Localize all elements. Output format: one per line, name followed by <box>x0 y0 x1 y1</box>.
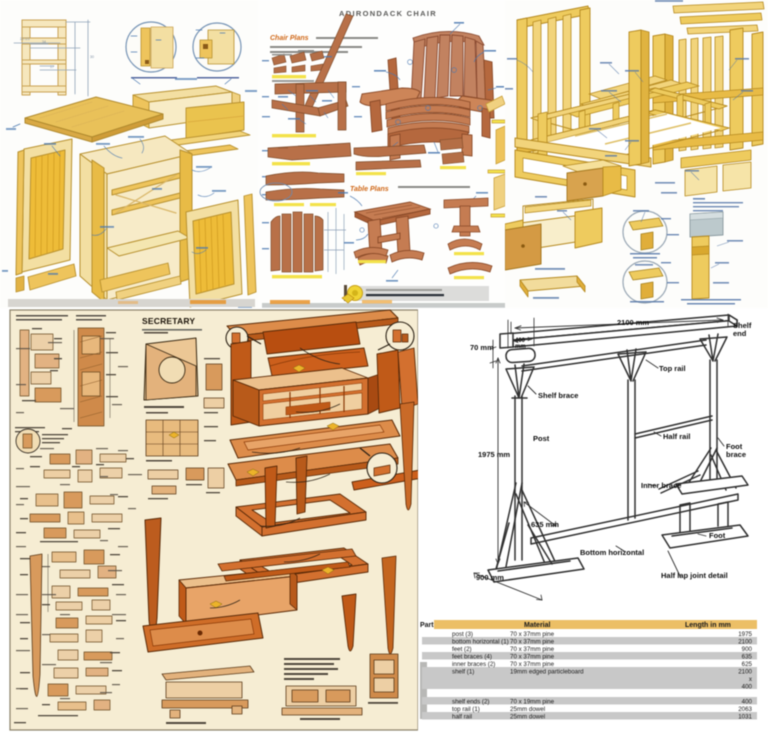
svg-text:end: end <box>733 329 747 338</box>
svg-text:Post: Post <box>533 434 550 443</box>
svg-text:feet (2): feet (2) <box>452 646 472 653</box>
svg-text:900: 900 <box>742 646 753 653</box>
svg-text:Table Plans: Table Plans <box>350 186 389 193</box>
svg-text:Shelf brace: Shelf brace <box>538 391 578 400</box>
svg-text:70 x 19mm pine: 70 x 19mm pine <box>510 699 555 706</box>
svg-text:1031: 1031 <box>738 714 752 721</box>
svg-text:635 mm: 635 mm <box>531 520 559 529</box>
svg-text:70 x 37mm pine: 70 x 37mm pine <box>510 646 555 653</box>
svg-text:2100 mm: 2100 mm <box>617 318 649 327</box>
svg-text:post (3): post (3) <box>452 631 473 638</box>
svg-text:ADIRONDACK CHAIR: ADIRONDACK CHAIR <box>339 9 437 18</box>
svg-text:brace: brace <box>726 450 746 459</box>
svg-text:400: 400 <box>742 699 753 706</box>
svg-text:Top rail: Top rail <box>659 364 686 373</box>
svg-text:70 x 37mm pine: 70 x 37mm pine <box>510 639 555 646</box>
svg-text:Bottom horizontal: Bottom horizontal <box>580 548 644 557</box>
svg-text:25mm dowel: 25mm dowel <box>510 706 545 713</box>
svg-text:1975 mm: 1975 mm <box>478 450 510 459</box>
svg-text:Part: Part <box>420 622 434 629</box>
svg-text:625: 625 <box>742 661 753 668</box>
svg-text:19mm edged particleboard: 19mm edged particleboard <box>510 669 584 676</box>
svg-text:400: 400 <box>742 684 753 691</box>
svg-text:2100: 2100 <box>738 639 752 646</box>
svg-text:70 mm: 70 mm <box>470 343 494 352</box>
svg-text:22-1/2: 22-1/2 <box>20 37 30 41</box>
svg-text:70 x 37mm pine: 70 x 37mm pine <box>510 631 555 638</box>
svg-text:25mm dowel: 25mm dowel <box>510 714 545 721</box>
svg-text:Length in mm: Length in mm <box>685 622 731 629</box>
svg-text:30: 30 <box>90 55 94 59</box>
svg-text:feet braces (4): feet braces (4) <box>452 654 492 661</box>
svg-text:SECRETARY: SECRETARY <box>142 316 195 326</box>
svg-text:half rail: half rail <box>452 714 472 721</box>
svg-text:70 x 37mm pine: 70 x 37mm pine <box>510 661 555 668</box>
svg-text:Foot: Foot <box>709 531 726 540</box>
svg-text:70 x 37mm pine: 70 x 37mm pine <box>510 654 555 661</box>
svg-text:Half rail: Half rail <box>663 432 691 441</box>
svg-text:17: 17 <box>50 65 54 69</box>
svg-text:Inner brace: Inner brace <box>641 481 681 490</box>
svg-text:bottom horizontal (1): bottom horizontal (1) <box>452 639 509 646</box>
svg-text:900 mm: 900 mm <box>476 573 504 582</box>
svg-text:mm: mm <box>515 344 526 350</box>
svg-text:shelf (1): shelf (1) <box>452 669 474 676</box>
svg-text:top rail (1): top rail (1) <box>452 706 480 713</box>
svg-text:shelf ends (2): shelf ends (2) <box>452 699 490 706</box>
svg-text:Chair Plans: Chair Plans <box>270 35 309 42</box>
svg-text:34: 34 <box>42 40 46 44</box>
svg-text:635: 635 <box>742 654 753 661</box>
svg-text:Material: Material <box>524 622 551 629</box>
svg-text:1975: 1975 <box>738 631 752 638</box>
svg-text:Half lap joint detail: Half lap joint detail <box>661 571 728 580</box>
svg-text:2100: 2100 <box>738 669 752 676</box>
svg-text:2063: 2063 <box>738 706 752 713</box>
svg-text:inner braces (2): inner braces (2) <box>452 661 495 668</box>
